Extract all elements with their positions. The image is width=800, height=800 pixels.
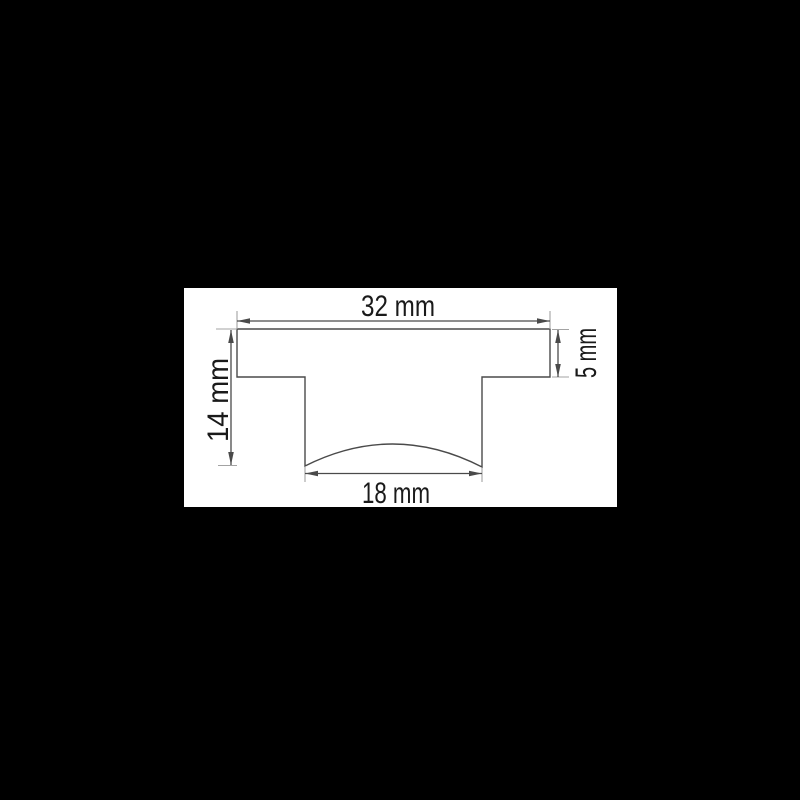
dim-label-overall-height: 14 mm bbox=[202, 358, 235, 442]
technical-drawing: 32 mm 5 mm 14 mm 18 mm bbox=[0, 0, 800, 800]
dim-label-overall-width: 32 mm bbox=[361, 290, 435, 323]
page-background: 32 mm 5 mm 14 mm 18 mm bbox=[0, 0, 800, 800]
dim-label-flange-thickness: 5 mm bbox=[570, 328, 603, 378]
dim-label-stem-width: 18 mm bbox=[362, 477, 430, 510]
